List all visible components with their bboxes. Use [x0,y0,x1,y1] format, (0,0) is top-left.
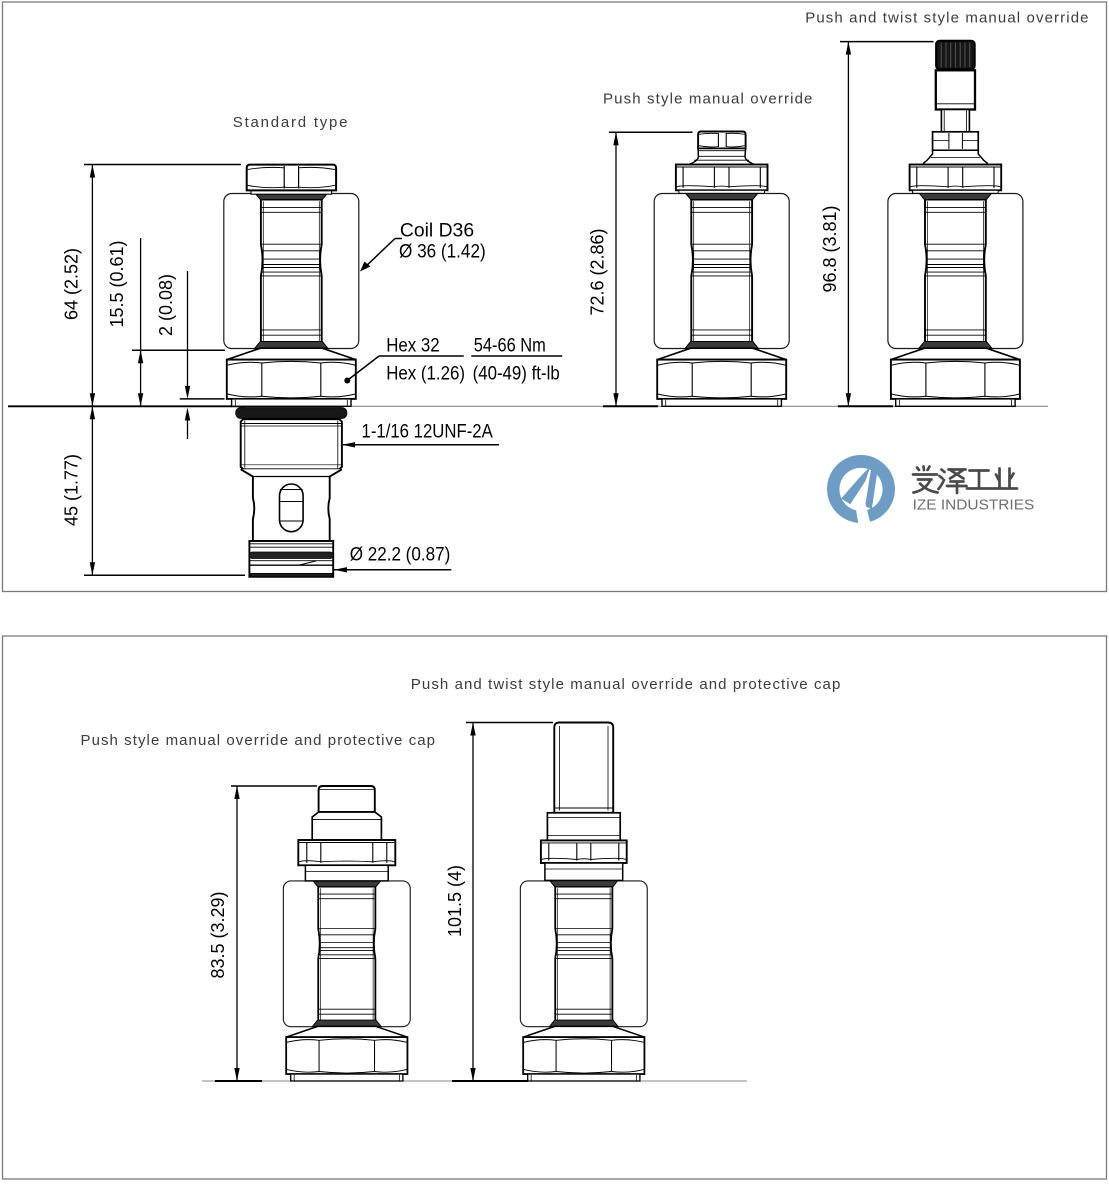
svg-text:Ø 36 (1.42): Ø 36 (1.42) [399,242,486,263]
svg-text:Ø 22.2 (0.87): Ø 22.2 (0.87) [350,545,451,566]
svg-text:Push and twist style manual ov: Push and twist style manual override and… [411,676,840,693]
svg-text:Coil D36: Coil D36 [400,221,474,242]
svg-text:2 (0.08): 2 (0.08) [156,274,176,336]
svg-text:15.5 (0.61): 15.5 (0.61) [107,240,127,327]
svg-text:Push style manual override and: Push style manual override and protectiv… [81,732,436,749]
svg-text:45 (1.77): 45 (1.77) [62,454,82,526]
svg-text:(40-49) ft-lb: (40-49) ft-lb [473,364,560,385]
svg-text:96.8 (3.81): 96.8 (3.81) [820,205,840,292]
svg-text:54-66 Nm: 54-66 Nm [474,336,546,357]
svg-text:101.5 (4): 101.5 (4) [445,865,465,937]
svg-text:64 (2.52): 64 (2.52) [62,248,82,320]
svg-text:Standard type: Standard type [233,114,348,131]
svg-text:Push style manual override: Push style manual override [603,91,812,108]
svg-text:72.6 (2.86): 72.6 (2.86) [588,228,608,315]
svg-text:Hex (1.26): Hex (1.26) [386,364,465,385]
svg-text:Push and twist style manual ov: Push and twist style manual override [805,10,1088,27]
svg-text:Hex 32: Hex 32 [386,336,440,357]
svg-text:83.5 (3.29): 83.5 (3.29) [208,891,228,978]
svg-text:IZE INDUSTRIES: IZE INDUSTRIES [913,498,1035,514]
svg-text:1-1/16 12UNF-2A: 1-1/16 12UNF-2A [362,422,494,443]
